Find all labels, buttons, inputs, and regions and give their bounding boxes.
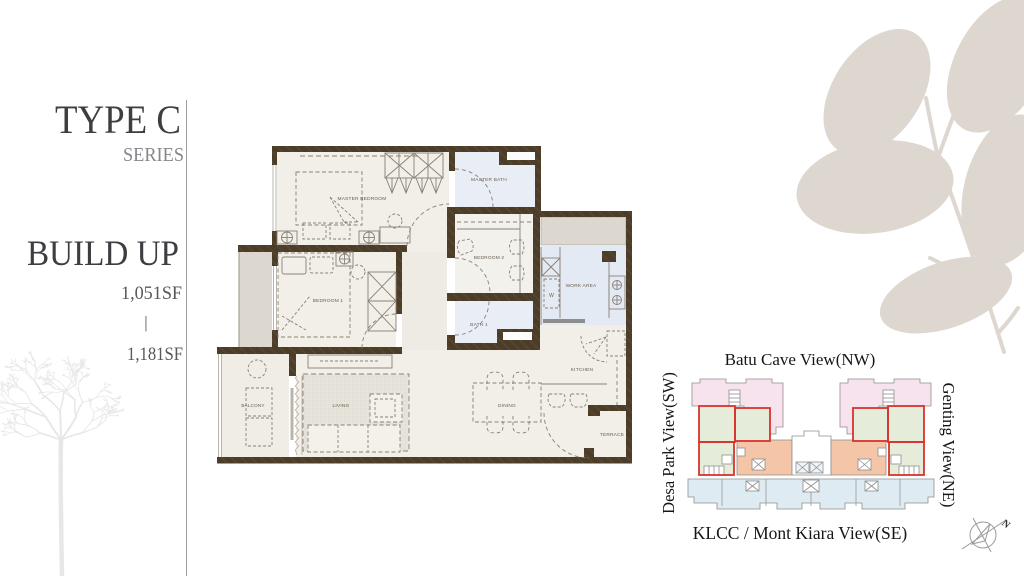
svg-text:LIVING: LIVING [333,403,350,409]
svg-text:BEDROOM 1: BEDROOM 1 [313,298,344,304]
svg-text:Batu Cave View(NW): Batu Cave View(NW) [725,350,876,369]
svg-text:BEDROOM 2: BEDROOM 2 [474,255,505,261]
svg-text:W: W [549,293,554,299]
svg-text:MASTER BATH: MASTER BATH [471,177,507,183]
svg-text:Desa Park View(SW): Desa Park View(SW) [659,372,678,514]
svg-text:|: | [144,313,147,332]
svg-text:1,051SF: 1,051SF [121,283,182,304]
svg-text:TERRACE: TERRACE [600,432,624,438]
svg-text:1,181SF: 1,181SF [127,344,183,365]
svg-text:BALCONY: BALCONY [241,403,264,408]
svg-text:BATH 1: BATH 1 [470,322,488,328]
svg-text:SERIES: SERIES [123,144,184,166]
svg-text:BUILD UP: BUILD UP [27,233,179,273]
svg-text:MASTER BEDROOM: MASTER BEDROOM [338,196,387,202]
svg-text:DINING: DINING [498,403,516,409]
svg-text:Genting View(NE): Genting View(NE) [939,383,958,508]
svg-text:KITCHEN: KITCHEN [571,367,594,373]
svg-text:WORK AREA: WORK AREA [566,283,597,289]
svg-text:TYPE C: TYPE C [55,97,181,142]
svg-text:KLCC / Mont Kiara View(SE): KLCC / Mont Kiara View(SE) [693,523,908,543]
